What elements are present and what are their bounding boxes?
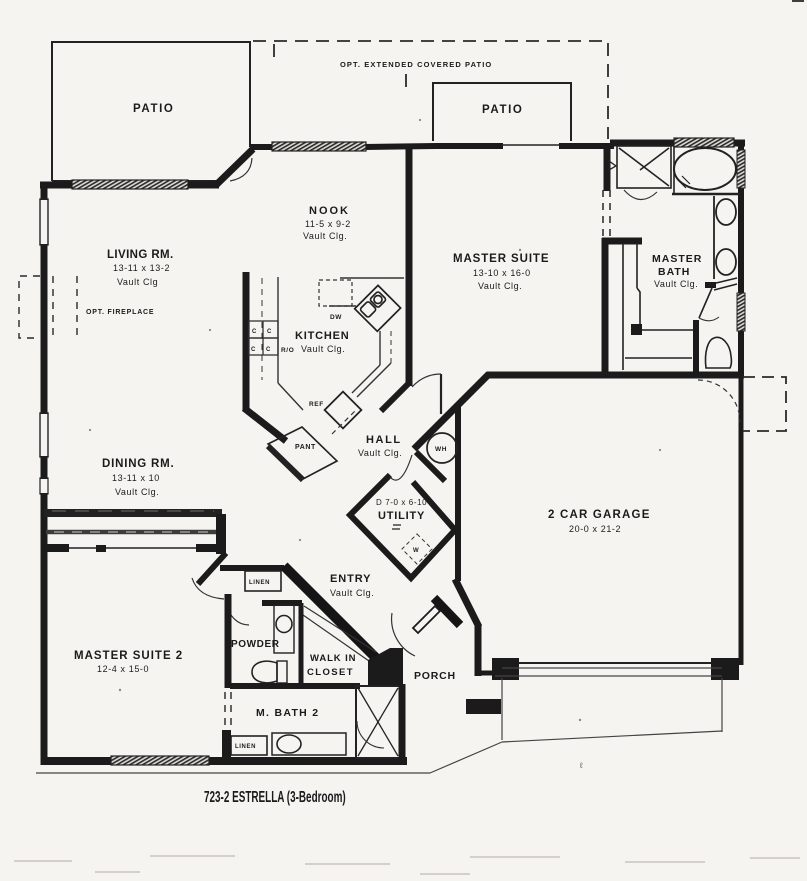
svg-text:Vault Clg.: Vault Clg. [301,344,345,354]
svg-text:ENTRY: ENTRY [330,573,371,585]
svg-text:MASTER SUITE 2: MASTER SUITE 2 [74,650,183,662]
svg-text:ℓ: ℓ [579,761,583,770]
svg-text:LIVING RM.: LIVING RM. [107,249,174,261]
svg-text:CLOSET: CLOSET [307,667,354,678]
svg-text:11-5 x 9-2: 11-5 x 9-2 [305,219,351,229]
svg-text:12-4 x 15-0: 12-4 x 15-0 [97,664,149,674]
svg-text:REF: REF [309,401,324,408]
svg-text:PATIO: PATIO [482,104,523,116]
svg-text:Vault Clg: Vault Clg [117,277,158,287]
svg-text:M. BATH 2: M. BATH 2 [256,707,319,719]
svg-text:D 7-0 x 6-10: D 7-0 x 6-10 [376,498,427,507]
svg-text:OPT. FIREPLACE: OPT. FIREPLACE [86,309,154,316]
svg-text:MASTER SUITE: MASTER SUITE [453,253,549,265]
svg-text:OPT. EXTENDED COVERED PATIO: OPT. EXTENDED COVERED PATIO [340,60,492,69]
svg-text:Vault Clg.: Vault Clg. [478,281,522,291]
svg-text:HALL: HALL [366,434,402,446]
svg-text:DINING RM.: DINING RM. [102,458,175,470]
svg-text:PATIO: PATIO [133,103,174,115]
svg-text:Vault Clg.: Vault Clg. [303,231,347,241]
svg-text:13-10 x 16-0: 13-10 x 16-0 [473,268,531,278]
svg-text:BATH: BATH [658,266,690,278]
svg-text:20-0 x 21-2: 20-0 x 21-2 [569,524,621,534]
svg-text:WALK IN: WALK IN [310,653,356,664]
svg-text:C: C [251,347,256,353]
svg-text:POWDER: POWDER [231,639,280,650]
svg-text:13-11 x 10: 13-11 x 10 [112,473,160,483]
svg-text:UTILITY: UTILITY [378,510,425,522]
svg-text:Vault Clg.: Vault Clg. [330,588,374,598]
svg-text:LINEN: LINEN [249,580,270,586]
svg-text:13-11 x 13-2: 13-11 x 13-2 [113,263,170,273]
svg-text:NOOK: NOOK [309,205,350,217]
svg-text:W: W [413,548,419,554]
svg-text:WH: WH [435,446,447,453]
svg-text:2 CAR GARAGE: 2 CAR GARAGE [548,509,651,521]
svg-text:MASTER: MASTER [652,253,702,265]
svg-text:C: C [252,329,257,335]
svg-text:LINEN: LINEN [235,744,256,750]
svg-text:KITCHEN: KITCHEN [295,330,350,342]
svg-text:C: C [267,329,272,335]
svg-text:Vault Clg.: Vault Clg. [358,448,402,458]
svg-text:723-2 ESTRELLA (3-Bedroom): 723-2 ESTRELLA (3-Bedroom) [204,788,346,806]
svg-text:PORCH: PORCH [414,670,456,682]
svg-text:Vault Clg.: Vault Clg. [115,487,159,497]
svg-text:Vault Clg.: Vault Clg. [654,279,698,289]
svg-text:DW: DW [330,314,342,321]
svg-text:R/O: R/O [281,347,294,354]
svg-text:C: C [266,347,271,353]
svg-text:PANT: PANT [295,444,316,451]
